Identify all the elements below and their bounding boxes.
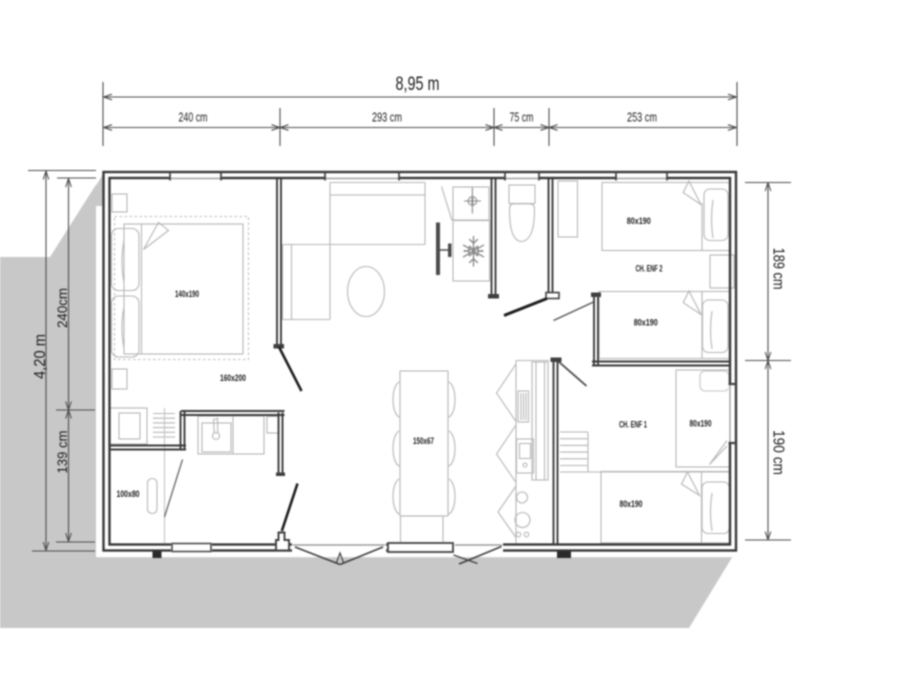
svg-text:8,95 m: 8,95 m bbox=[396, 74, 440, 95]
svg-text:160x200: 160x200 bbox=[220, 373, 246, 384]
svg-text:140x190: 140x190 bbox=[175, 289, 199, 300]
svg-text:139 cm: 139 cm bbox=[54, 431, 70, 474]
svg-text:293 cm: 293 cm bbox=[372, 110, 402, 125]
svg-text:189 cm: 189 cm bbox=[770, 248, 787, 290]
svg-text:75 cm: 75 cm bbox=[510, 110, 534, 125]
svg-text:240 cm: 240 cm bbox=[179, 110, 208, 125]
svg-text:80x190: 80x190 bbox=[627, 216, 651, 227]
svg-text:150x67: 150x67 bbox=[413, 436, 434, 447]
svg-text:CH. ENF 1: CH. ENF 1 bbox=[619, 420, 647, 431]
svg-text:240cm: 240cm bbox=[54, 288, 70, 328]
svg-text:253 cm: 253 cm bbox=[627, 110, 657, 125]
svg-text:80x190: 80x190 bbox=[690, 419, 712, 430]
svg-text:CH. ENF 2: CH. ENF 2 bbox=[636, 264, 663, 275]
svg-text:4,20 m: 4,20 m bbox=[32, 334, 49, 379]
svg-text:100x80: 100x80 bbox=[117, 489, 140, 500]
svg-text:80x190: 80x190 bbox=[620, 499, 643, 510]
svg-text:190 cm: 190 cm bbox=[770, 430, 787, 475]
svg-text:80x190: 80x190 bbox=[634, 318, 658, 329]
